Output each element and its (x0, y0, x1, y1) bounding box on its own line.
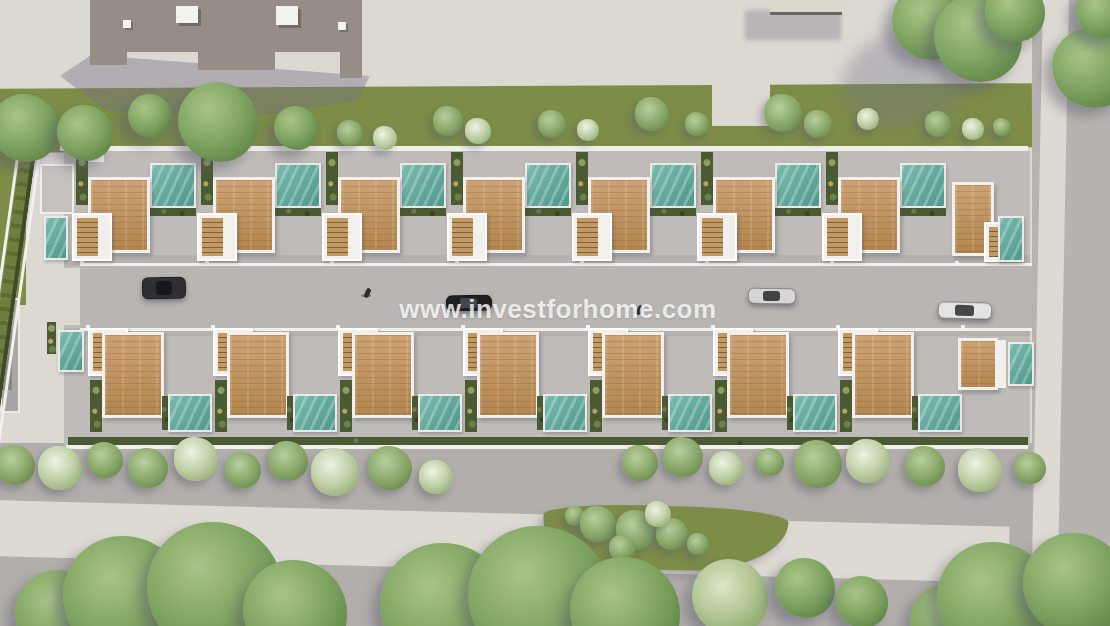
villa-pool (150, 163, 196, 208)
aerial-render-housing-development: www.investforhome.com (0, 0, 1110, 626)
villa-pool-hedge (400, 208, 446, 216)
villa-pool (168, 394, 212, 432)
bush (962, 118, 984, 140)
bush (857, 108, 879, 130)
bush (687, 533, 709, 555)
bush (128, 448, 168, 488)
villa-roof-terrace-deck (477, 332, 539, 418)
villa-stair-core (697, 213, 737, 261)
villa-pool-hedge (525, 208, 571, 216)
tree (836, 576, 888, 626)
bush (663, 437, 703, 477)
tree (692, 559, 768, 626)
corner-villa-pool (58, 330, 84, 372)
bush (337, 120, 363, 146)
bush (794, 440, 842, 488)
villa-pool (418, 394, 462, 432)
tree (128, 94, 172, 138)
villa-planting-strip (590, 380, 602, 432)
bush (38, 446, 82, 490)
bush (174, 437, 218, 481)
villa-pool (543, 394, 587, 432)
bush (958, 448, 1002, 492)
stair-treads (202, 218, 223, 256)
tree (1052, 28, 1110, 108)
villa-roof-terrace-deck (352, 332, 414, 418)
bush (577, 119, 599, 141)
villa-pool (275, 163, 321, 208)
villa-pool (775, 163, 821, 208)
bush (580, 506, 616, 542)
villa-pool (900, 163, 946, 208)
corner-villa-trim (998, 340, 1006, 388)
tree (0, 94, 59, 162)
car-windshield (155, 281, 171, 295)
bush (0, 445, 35, 485)
bush (925, 111, 951, 137)
villa-planting-strip (701, 152, 713, 205)
bush (465, 118, 491, 144)
villa-pool-hedge (650, 208, 696, 216)
stair-treads (577, 218, 598, 256)
bush (905, 446, 945, 486)
bush (645, 501, 671, 527)
bush (685, 112, 709, 136)
stair-treads (77, 218, 98, 256)
villa-planting-strip (826, 152, 838, 205)
villa-stair-core (197, 213, 237, 261)
corner-villa-pool (44, 216, 68, 260)
tree (1023, 533, 1110, 626)
villa-pool-hedge (775, 208, 821, 216)
bush (622, 445, 658, 481)
car-white-right (938, 301, 992, 319)
villa-pool-hedge (900, 208, 946, 216)
corner-villa-deck (958, 338, 998, 390)
bush (368, 446, 412, 490)
tree (178, 82, 258, 162)
villa-pool-hedge (275, 208, 321, 216)
bush (268, 441, 308, 481)
villa-pool-hedge (150, 208, 196, 216)
bush (756, 448, 784, 476)
villa-pool (793, 394, 837, 432)
villa-pool (293, 394, 337, 432)
villa-roof-terrace-deck (102, 332, 164, 418)
corner-villa-pool (1008, 342, 1034, 386)
bush (709, 451, 743, 485)
bush (764, 94, 802, 132)
villa-pool (400, 163, 446, 208)
villa-stair-core (822, 213, 862, 261)
villa-planting-strip (340, 380, 352, 432)
villa-stair-core (572, 213, 612, 261)
stair-treads (702, 218, 723, 256)
villa-planting-strip (90, 380, 102, 432)
bush (538, 110, 566, 138)
corner-villa-roofbox (40, 164, 74, 214)
stair-treads (327, 218, 348, 256)
bush (846, 439, 890, 483)
car-windshield (763, 291, 781, 301)
villa-planting-strip (215, 380, 227, 432)
bush (1014, 452, 1046, 484)
stair-treads (827, 218, 848, 256)
bush (373, 126, 397, 150)
villa-pool (525, 163, 571, 208)
watermark-text: www.investforhome.com (399, 294, 716, 325)
bush (419, 460, 453, 494)
bush (311, 448, 359, 496)
villa-planting-strip (47, 322, 56, 354)
villa-pool (918, 394, 962, 432)
villa-planting-strip (451, 152, 463, 205)
villa-pool (650, 163, 696, 208)
villa-roof-terrace-deck (852, 332, 914, 418)
tree (57, 105, 113, 161)
bush (225, 452, 261, 488)
tree (274, 106, 318, 150)
car-dark-left (142, 277, 186, 300)
person (363, 287, 372, 298)
car-silver (748, 288, 796, 304)
villa-pool (668, 394, 712, 432)
bush (804, 110, 832, 138)
corner-villa-pool (998, 216, 1024, 262)
villa-stair-core (447, 213, 487, 261)
bush (635, 97, 669, 131)
villa-planting-strip (576, 152, 588, 205)
villa-planting-strip (840, 380, 852, 432)
bush (993, 118, 1011, 136)
villa-planting-strip (715, 380, 727, 432)
villa-roof-terrace-deck (227, 332, 289, 418)
villa-roof-terrace-deck (602, 332, 664, 418)
villa-stair-core (322, 213, 362, 261)
bush (87, 442, 123, 478)
villa-planting-strip (326, 152, 338, 205)
tree (775, 558, 835, 618)
villa-stair-core (72, 213, 112, 261)
bush (433, 106, 463, 136)
villa-roof-terrace-deck (727, 332, 789, 418)
car-windshield (954, 305, 974, 316)
villa-planting-strip (465, 380, 477, 432)
stair-treads (452, 218, 473, 256)
